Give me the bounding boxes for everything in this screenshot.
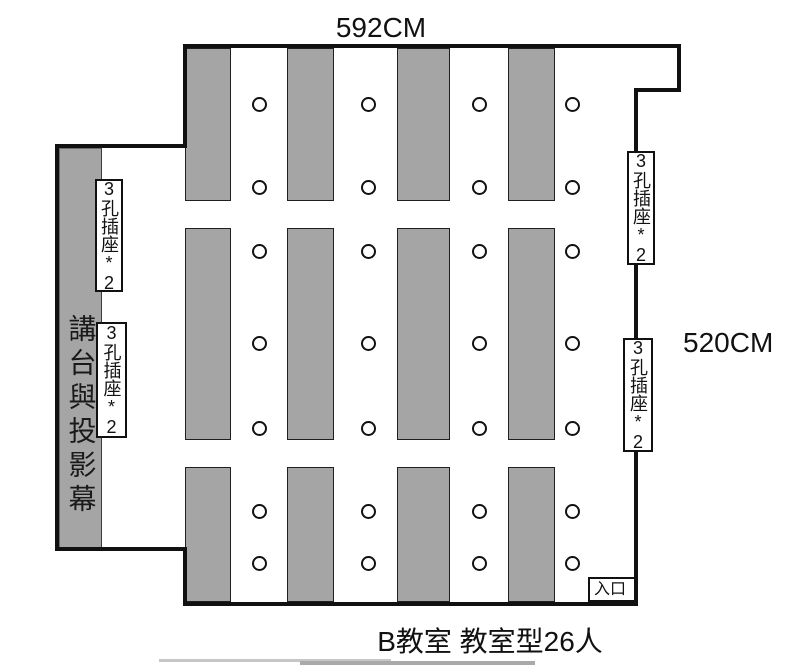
desk-table xyxy=(508,48,555,201)
chair-circle xyxy=(565,556,580,571)
outlet-label: 3孔插座*2 xyxy=(103,323,121,437)
chair-circle xyxy=(252,421,267,436)
chair-circle xyxy=(252,504,267,519)
chair-circle xyxy=(472,336,487,351)
outlet-box-right-2: 3孔插座*2 xyxy=(623,338,653,452)
outlet-box-left-2: 3孔插座*2 xyxy=(96,322,127,438)
chair-circle xyxy=(565,180,580,195)
chair-circle xyxy=(565,504,580,519)
chair-circle xyxy=(565,336,580,351)
dimension-width-label: 592CM xyxy=(281,14,481,42)
dimension-height-label: 520CM xyxy=(683,329,773,357)
desk-table xyxy=(397,48,450,201)
chair-circle xyxy=(361,556,376,571)
desk-table xyxy=(508,228,555,440)
entrance-box: 入口 xyxy=(588,577,636,602)
chair-circle xyxy=(565,97,580,112)
chair-circle xyxy=(361,180,376,195)
desk-table xyxy=(508,467,555,602)
outlet-label: 3孔插座*2 xyxy=(100,179,118,293)
desk-table xyxy=(397,228,450,440)
desk-table xyxy=(185,48,231,201)
chair-circle xyxy=(361,244,376,259)
chair-circle xyxy=(361,336,376,351)
desk-table xyxy=(287,467,334,602)
desk-table xyxy=(287,228,334,440)
outlet-box-right-1: 3孔插座*2 xyxy=(627,151,655,265)
chair-circle xyxy=(252,97,267,112)
cropped-edge-artifact xyxy=(300,661,535,665)
floor-plan: 講台與投影幕 3孔插座*2 3孔插座*2 3孔插座*2 3孔插座*2 入口 59… xyxy=(0,0,800,665)
chair-circle xyxy=(565,244,580,259)
chair-circle xyxy=(472,421,487,436)
entrance-label: 入口 xyxy=(594,582,626,598)
chair-circle xyxy=(472,180,487,195)
chair-circle xyxy=(252,180,267,195)
chair-circle xyxy=(252,556,267,571)
desk-table xyxy=(185,467,231,602)
outlet-label: 3孔插座*2 xyxy=(629,338,647,452)
chair-circle xyxy=(472,556,487,571)
outlet-label: 3孔插座*2 xyxy=(632,151,650,265)
chair-circle xyxy=(472,97,487,112)
chair-circle xyxy=(565,421,580,436)
chair-circle xyxy=(252,336,267,351)
outlet-box-left-1: 3孔插座*2 xyxy=(95,179,123,292)
chair-circle xyxy=(472,244,487,259)
chair-circle xyxy=(361,97,376,112)
desk-table xyxy=(287,48,334,201)
room-caption: B教室 教室型26人 xyxy=(260,628,720,656)
podium-label: 講台與投影幕 xyxy=(67,314,95,518)
chair-circle xyxy=(361,504,376,519)
desk-table xyxy=(397,467,450,602)
chair-circle xyxy=(361,421,376,436)
room-outline xyxy=(57,46,679,604)
chair-circle xyxy=(472,504,487,519)
chair-circle xyxy=(252,244,267,259)
desk-table xyxy=(185,228,231,440)
